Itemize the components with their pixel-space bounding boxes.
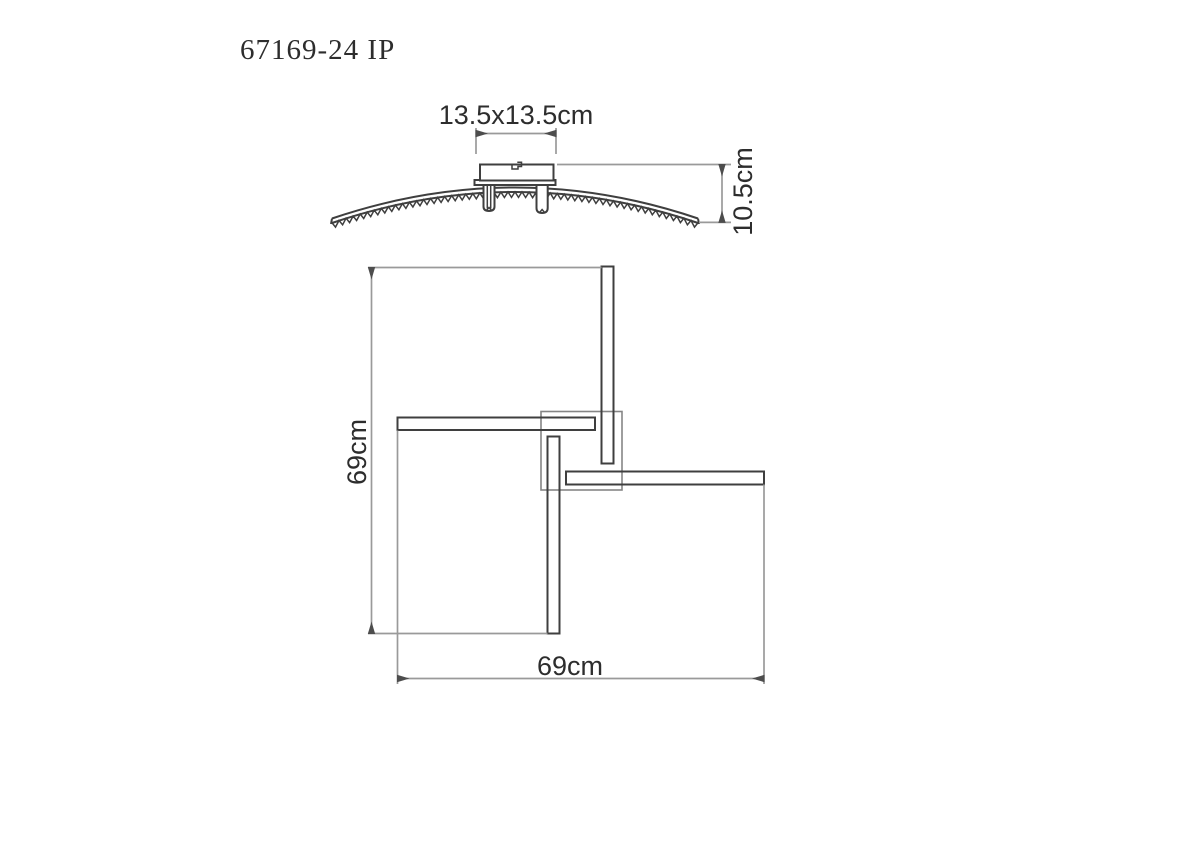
width-dimension: 69cm (398, 431, 765, 685)
canopy-dimension-label: 13.5x13.5cm (439, 100, 594, 130)
depth-dimension-label: 69cm (342, 419, 372, 485)
height-dimension-label: 10.5cm (728, 147, 758, 236)
technical-drawing-page: 67169-24 IP 13.5x13.5cm (0, 0, 1200, 848)
crystal-teeth-zigzag (332, 192, 698, 227)
left-mounting-stem (484, 182, 495, 211)
light-bar-right (566, 472, 764, 485)
light-bar-top (602, 267, 614, 464)
arc-bottom-edge (332, 192, 698, 223)
width-dimension-label: 69cm (537, 651, 603, 681)
product-code: 67169-24 IP (240, 34, 395, 66)
right-mounting-stem (537, 182, 548, 213)
drawing-canvas: 67169-24 IP 13.5x13.5cm (0, 0, 1200, 848)
canopy-dimension: 13.5x13.5cm (439, 100, 594, 154)
light-bar-down (548, 437, 560, 634)
light-bar-left (398, 418, 596, 431)
top-view: 69cm 69cm (342, 267, 764, 685)
side-view: 13.5x13.5cm 10.5cm (331, 100, 758, 236)
canopy-box (480, 165, 554, 181)
central-bracket-square (541, 412, 622, 491)
depth-dimension: 69cm (342, 268, 602, 634)
